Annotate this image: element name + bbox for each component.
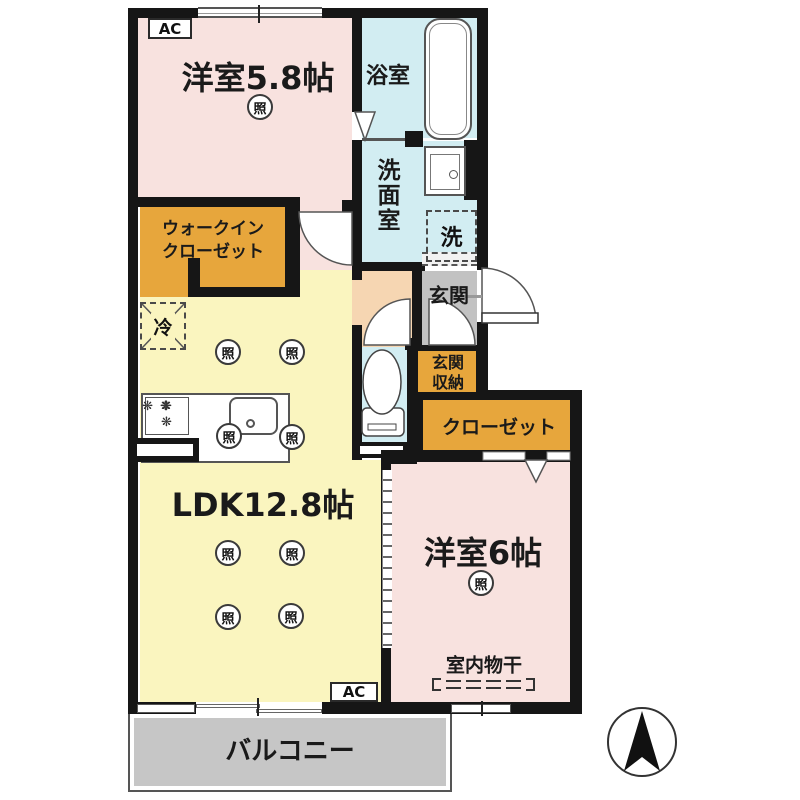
light-symbol: 照 [215,604,241,630]
wall [570,390,582,714]
kitchen-faucet [246,419,255,428]
washroom-label: 洗面室 [369,158,403,233]
ldk-label: LDK12.8帖 [172,480,355,526]
washer-label: 洗 [440,220,462,252]
wall [352,325,362,460]
entrance-storage-label: 玄関 収納 [432,353,464,393]
wall [477,390,582,400]
toilet-door-arc [364,299,410,345]
ldk-bedroom2-sliding-door [382,470,392,648]
bath-folding-door [355,112,375,140]
wall [412,265,422,347]
stove: ❋ ❋❋ ❋ [145,397,189,435]
bath-label: 浴室 [366,58,410,90]
balcony-sliding-door [196,702,322,716]
light-symbol: 照 [279,424,305,450]
toilet-bowl [363,350,401,414]
floorplan-canvas: ❋ ❋❋ ❋ 冷 洗 AC AC 照 照 照 照 照 照 照 照 照 照 洋室5… [0,0,800,800]
toilet-base [368,424,396,430]
bath-partition-line [362,138,408,141]
wall [352,8,362,112]
light-symbol: 照 [279,339,305,365]
wall [477,8,488,270]
bedroom1-top-window [198,7,322,18]
wall [477,322,488,400]
indoor-drying-label: 室内物干 [446,651,522,678]
wall [405,131,423,147]
fridge-space: 冷 [140,302,186,350]
light-symbol: 照 [279,540,305,566]
entrance-door-leaf [482,313,538,323]
closet-door-leaf [547,452,570,460]
wall [342,200,362,212]
wic-label: ウォークイン クローゼット [162,218,264,264]
light-symbol: 照 [278,603,304,629]
wall [285,197,300,297]
wall [135,197,300,207]
closet-label: クローゼット [442,413,556,440]
wall [188,287,300,297]
bedroom2-label: 洋室6帖 [424,528,542,574]
washer-space: 洗 [426,210,477,262]
bedroom2-bottom-window [451,704,511,713]
closet-folding-door [525,460,547,482]
balcony-label: バルコニー [225,731,354,768]
washroom-vanity [424,146,466,196]
indoor-drying-bracket [432,678,535,691]
bedroom1-label: 洋室5.8帖 [182,53,335,99]
fridge-label: 冷 [151,313,174,340]
ldk-bottom-window [137,704,195,713]
wall [407,347,417,447]
entrance-label: 玄関 [429,280,469,309]
walls-and-fixtures-layer [0,0,800,800]
light-symbol: 照 [215,339,241,365]
light-symbol: 照 [215,540,241,566]
kitchen-front-wall [131,438,199,462]
wall [128,8,138,714]
light-symbol: 照 [216,423,242,449]
bathtub [424,18,472,140]
bedroom1-door-arc [299,212,352,265]
ac-label-bedroom1: AC [148,18,192,39]
ac-label-ldk: AC [330,682,378,702]
closet-door-leaf [483,452,525,460]
